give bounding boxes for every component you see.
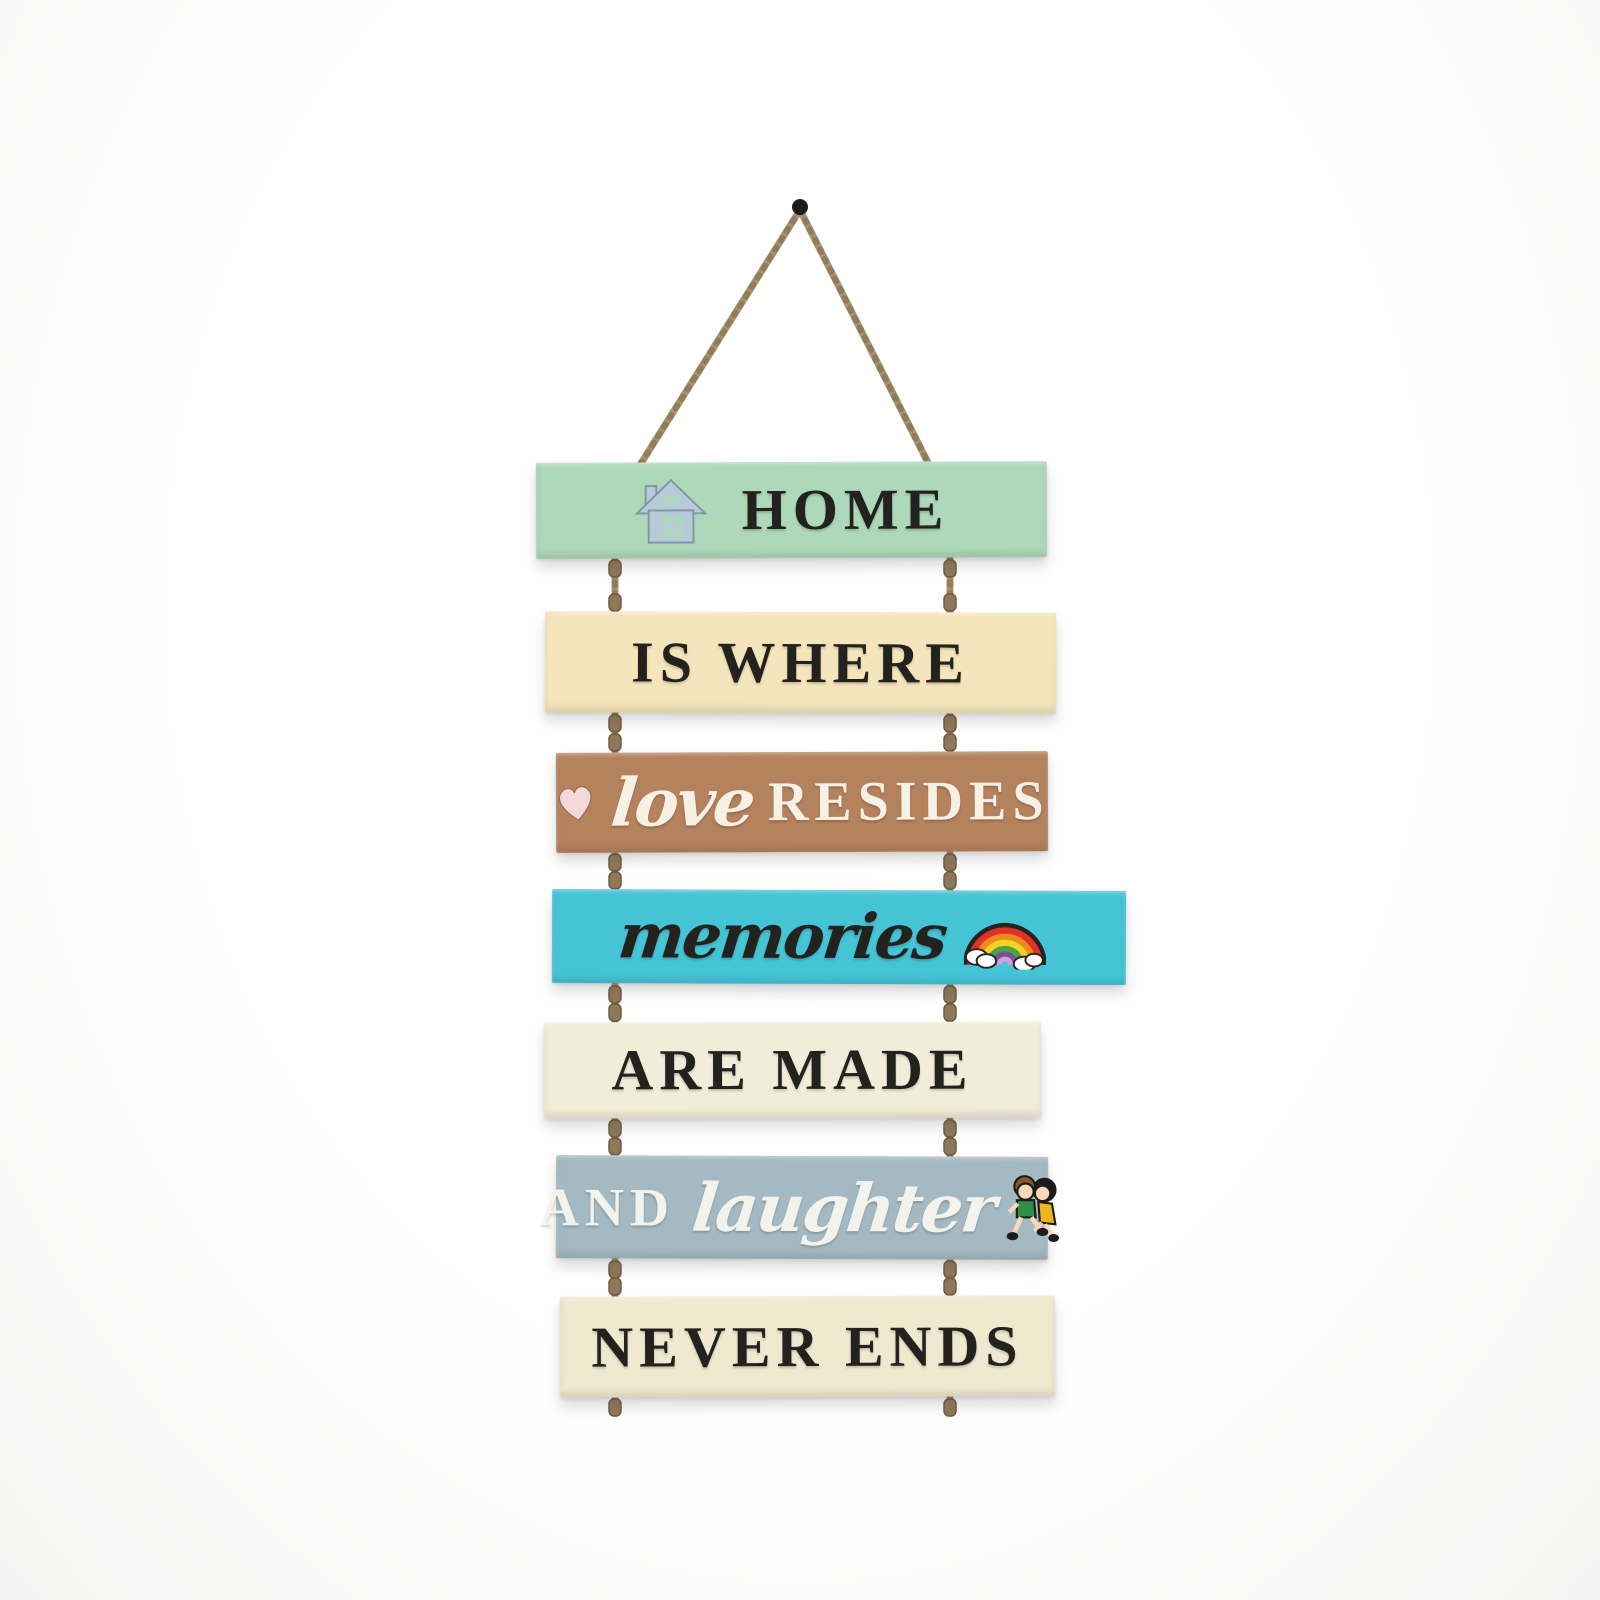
plank-love-resides: love RESIDES — [556, 751, 1048, 853]
plank-text-and: AND — [540, 1180, 675, 1234]
wall-hanging-sign-photo: HOME IS WHERE love RESIDES memories — [0, 0, 1600, 1600]
plank-home: HOME — [536, 461, 1047, 559]
plank-never-ends: NEVER ENDS — [560, 1295, 1055, 1397]
plank-text-never-ends: NEVER ENDS — [591, 1317, 1023, 1376]
plank-script-laughter: laughter — [689, 1174, 997, 1241]
plank-script-love: love — [609, 769, 757, 836]
house-icon — [634, 473, 708, 547]
rainbow-icon — [964, 905, 1046, 969]
heart-icon — [552, 780, 601, 826]
plank-text-are-made: ARE MADE — [611, 1041, 973, 1100]
plank-text-resides: RESIDES — [768, 773, 1050, 830]
plank-text-home: HOME — [742, 480, 950, 539]
children-running-icon — [1004, 1170, 1064, 1246]
plank-is-where: IS WHERE — [545, 611, 1056, 713]
plank-script-memories: memories — [616, 905, 949, 968]
plank-memories: memories — [552, 889, 1126, 985]
nail-icon — [792, 199, 808, 215]
plank-are-made: ARE MADE — [544, 1022, 1041, 1119]
plank-and-laughter: AND laughter — [556, 1155, 1048, 1260]
plank-text-is-where: IS WHERE — [631, 633, 970, 692]
